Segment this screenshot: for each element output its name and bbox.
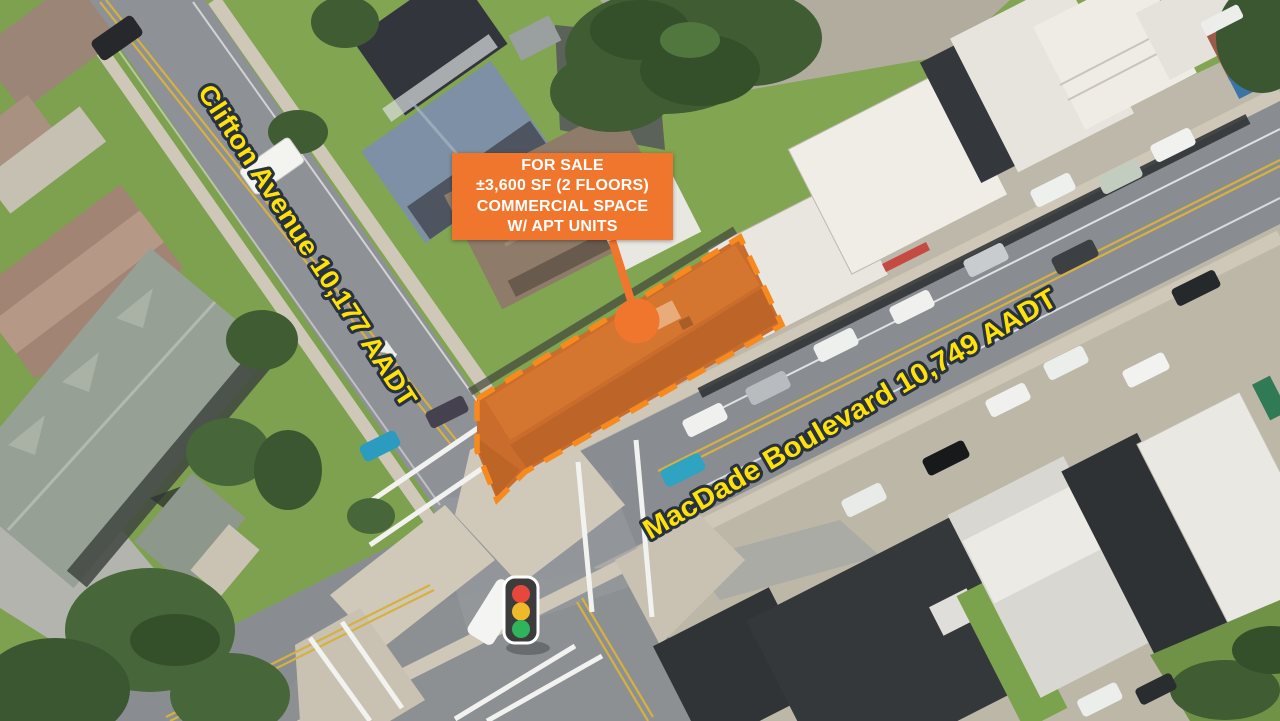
satellite-map: Clifton Avenue 10,177 AADT MacDade Boule… xyxy=(0,0,1280,721)
red-light xyxy=(512,585,530,603)
callout-line-2: ±3,600 SF (2 FLOORS) xyxy=(476,176,649,197)
leader-marker-dot xyxy=(615,299,660,344)
amber-light xyxy=(512,603,530,621)
callout-line-1: FOR SALE xyxy=(521,156,604,177)
green-light xyxy=(512,620,530,638)
aerial-map-image: Clifton Avenue 10,177 AADT MacDade Boule… xyxy=(0,0,1280,721)
callout-line-3: COMMERCIAL SPACE xyxy=(477,197,649,218)
for-sale-callout: FOR SALE ±3,600 SF (2 FLOORS) COMMERCIAL… xyxy=(452,153,673,240)
callout-line-4: W/ APT UNITS xyxy=(507,217,617,238)
